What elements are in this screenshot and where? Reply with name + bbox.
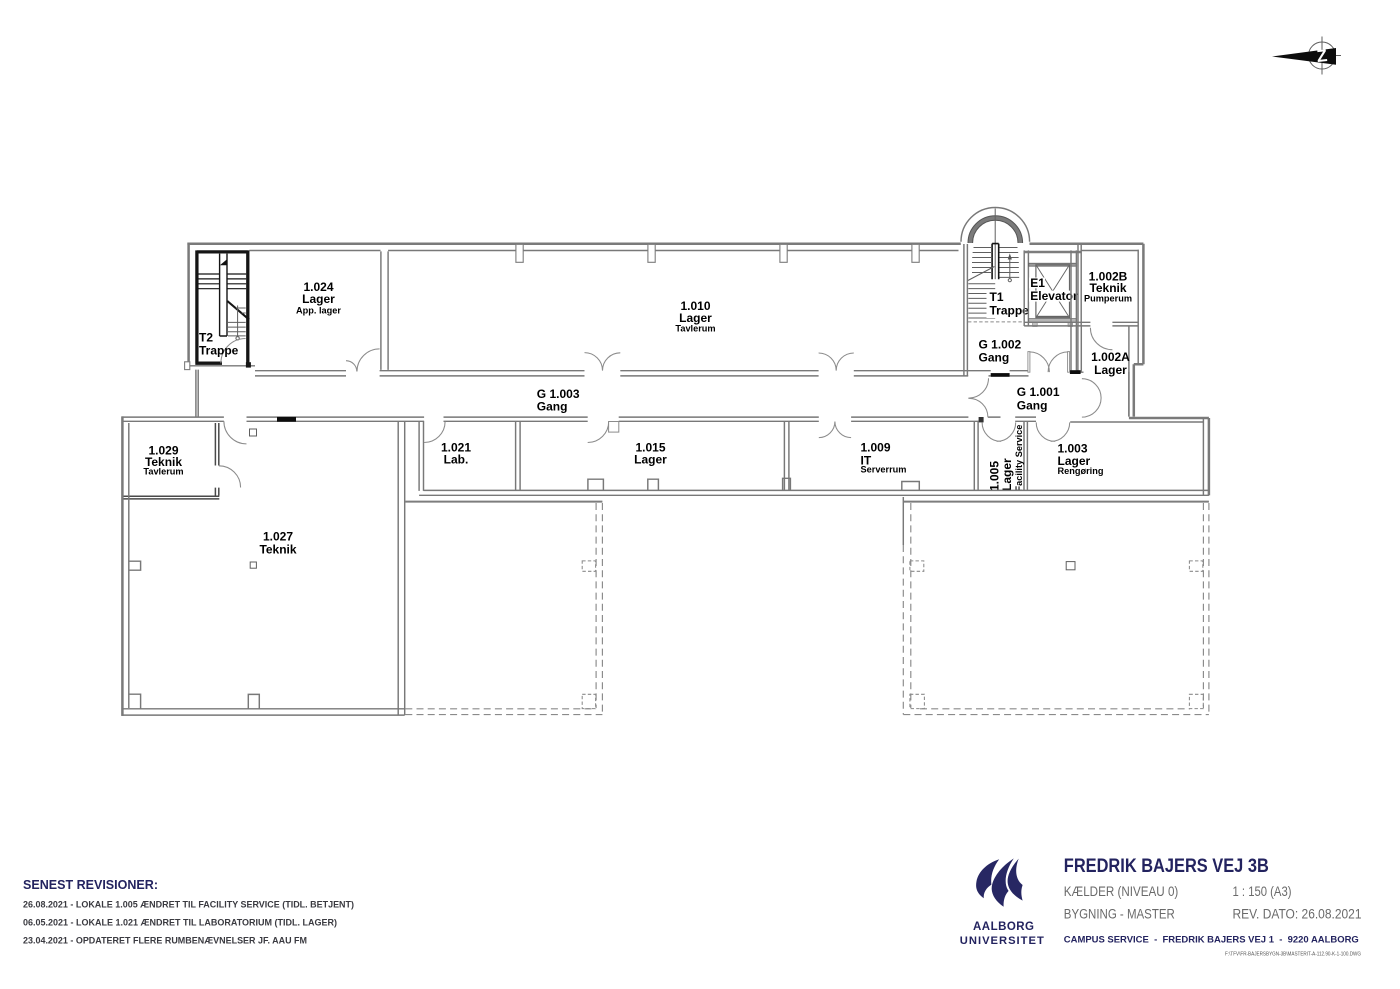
svg-text:BYGNING - MASTER: BYGNING - MASTER [1064,907,1175,922]
svg-text:Lager: Lager [1094,363,1127,377]
svg-text:UNIVERSITET: UNIVERSITET [960,935,1044,947]
svg-text:Gang: Gang [979,351,1010,365]
svg-text:Gang: Gang [537,400,568,414]
svg-text:Lab.: Lab. [444,453,469,467]
svg-text:SENEST REVISIONER:: SENEST REVISIONER: [23,877,158,892]
svg-text:Tavlerum: Tavlerum [143,467,183,477]
svg-text:26.08.2021 - LOKALE 1.005 ÆNDR: 26.08.2021 - LOKALE 1.005 ÆNDRET TIL FAC… [23,900,354,910]
svg-text:Serverrum: Serverrum [861,465,907,475]
svg-text:1 : 150 (A3): 1 : 150 (A3) [1233,884,1292,899]
svg-text:Rengøring: Rengøring [1058,466,1104,476]
svg-text:REV. DATO: 26.08.2021: REV. DATO: 26.08.2021 [1233,907,1362,922]
svg-text:Z: Z [1316,46,1328,66]
svg-text:Tavlerum: Tavlerum [675,324,715,334]
svg-text:Lager: Lager [302,292,335,306]
svg-text:Facility Service: Facility Service [1014,425,1024,492]
svg-text:T2: T2 [199,331,213,345]
svg-text:KÆLDER (NIVEAU 0): KÆLDER (NIVEAU 0) [1064,884,1179,899]
svg-text:CAMPUS SERVICE - FREDRIK BAJ: CAMPUS SERVICE - FREDRIK BAJERS VEJ 1 - … [1064,935,1359,945]
svg-text:FREDRIK BAJERS VEJ 3B: FREDRIK BAJERS VEJ 3B [1064,856,1269,877]
svg-text:Trappe: Trappe [990,304,1030,318]
svg-text:06.05.2021 - LOKALE 1.021 ÆND: 06.05.2021 - LOKALE 1.021 ÆNDRET TIL LAB… [23,918,337,928]
svg-text:E1: E1 [1030,276,1045,290]
svg-text:F:\TFV\FR-BAJERSBYGN-3B\MASTER: F:\TFV\FR-BAJERSBYGN-3B\MASTERIT-A-112.9… [1225,952,1361,958]
svg-text:G 1.001: G 1.001 [1017,385,1060,399]
svg-text:1.009: 1.009 [861,441,891,455]
svg-text:AALBORG: AALBORG [973,921,1034,933]
svg-text:1.002A: 1.002A [1091,350,1130,364]
svg-text:Lager: Lager [1000,458,1014,491]
svg-text:23.04.2021 - OPDATERET FLERE R: 23.04.2021 - OPDATERET FLERE RUMBENÆVNEL… [23,936,307,946]
svg-text:App. lager: App. lager [296,306,341,316]
svg-text:G 1.002: G 1.002 [979,338,1022,352]
svg-text:Teknik: Teknik [259,543,296,557]
svg-text:Gang: Gang [1017,399,1048,413]
svg-text:1.027: 1.027 [263,530,293,544]
svg-text:Trappe: Trappe [199,344,239,358]
svg-text:Lager: Lager [634,453,667,467]
svg-text:Pumperum: Pumperum [1084,294,1132,304]
svg-text:T1: T1 [990,290,1004,304]
